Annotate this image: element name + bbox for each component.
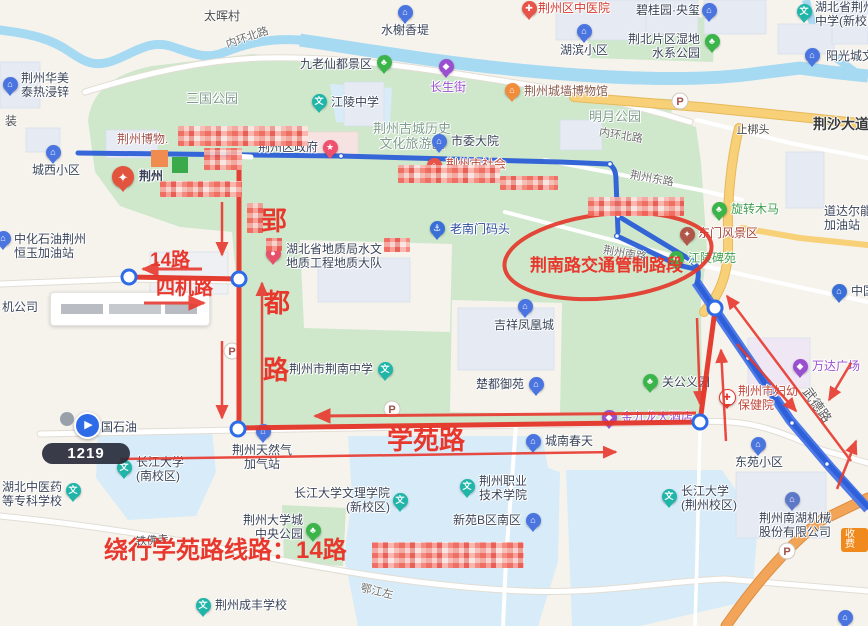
poi-label-laonanmen-matou[interactable]: 老南门码头	[450, 223, 510, 237]
poi-label-ji-gongsi[interactable]: 机公司	[2, 301, 38, 315]
jingnan-zhongxue-pin-icon[interactable]: 文	[378, 362, 393, 377]
wenli-xueyuan-pin-icon[interactable]: 文	[393, 493, 408, 508]
poi-label-chengxi-xiaoqu[interactable]: 城西小区	[32, 164, 80, 178]
dongyuan-xiaoqu-pin-icon[interactable]: ⌂	[751, 437, 766, 452]
poi-label-chudu-yuyuan[interactable]: 楚都御苑	[476, 378, 524, 392]
censored-text	[204, 148, 242, 170]
xuanzhuan-muma-pin-icon[interactable]: ♣	[712, 202, 727, 217]
changshengjie-pin-icon[interactable]: ◆	[439, 59, 454, 74]
jingzhou-badge-pin-icon[interactable]: ✦	[112, 166, 134, 188]
poi-label-jixiang-fenghuangcheng[interactable]: 吉祥凤凰城	[494, 319, 554, 333]
jinjiulong-hotel-pin-icon[interactable]: ◆	[602, 410, 617, 425]
yangguangcheng-pin-icon[interactable]: ⌂	[805, 48, 820, 63]
poi-label-sanguo-park[interactable]: 三国公园	[186, 92, 238, 107]
route-14-annotation: 14路	[150, 251, 190, 270]
yingdu-road-annotation-char: 路	[263, 357, 289, 383]
censored-text	[160, 181, 242, 197]
laonanmen-matou-pin-icon[interactable]: ⚓	[430, 221, 445, 236]
poi-label-jingbei-shidi-park[interactable]: 荆北片区湿地水系公园	[628, 33, 700, 61]
poi-label-changshengjie[interactable]: 长生街	[430, 81, 466, 95]
daxuecheng-park-pin-icon[interactable]: ♣	[306, 523, 321, 538]
zhongguo-shihua-pin-icon[interactable]: ⌂	[832, 284, 847, 299]
poi-label-shuixie-xiangdi[interactable]: 水榭香堤	[381, 24, 429, 38]
chudu-yuyuan-pin-icon[interactable]: ⌂	[529, 377, 544, 392]
biguiyuan-yangxi-pin-icon[interactable]: ⌂	[702, 3, 717, 18]
jiangling-zhongxue-pin-icon[interactable]: 文	[312, 94, 327, 109]
poi-label-zhuang-cut[interactable]: 装	[5, 115, 17, 129]
poi-label-xinyuan-b[interactable]: 新苑B区南区	[453, 514, 521, 528]
poi-label-zhiye-jishu-xueyuan[interactable]: 荆州职业技术学院	[479, 475, 527, 503]
zhongyiyao-zhuanke-pin-icon[interactable]: 文	[66, 483, 81, 498]
wanda-plaza-pin-icon[interactable]: ◆	[793, 359, 808, 374]
poi-label-jingzhou-huamei[interactable]: 荆州华美泰热浸锌	[21, 72, 69, 100]
bus-tooltip: 1219	[42, 443, 130, 464]
poi-label-daodaer-jiayou[interactable]: 道达尔能源加油站	[824, 205, 868, 233]
poi-layer: ⌂水榭香堤✚荆州区中医院⌂碧桂园·央玺文湖北省荆州中学(新校区)⌂湖滨小区♣荆北…	[0, 0, 868, 626]
hubei-jingzhou-zhongxue-pin-icon[interactable]: 文	[797, 4, 812, 19]
poi-label-zhongguo-shihua[interactable]: 中国石化	[851, 285, 868, 299]
guangong-yiyuan-pin-icon[interactable]: ♣	[643, 374, 658, 389]
jixiang-fenghuangcheng-pin-icon[interactable]: ⌂	[518, 299, 533, 314]
chengqiang-bowuguan-pin-icon[interactable]: ⌂	[505, 83, 520, 98]
play-icon: ▶	[84, 420, 92, 431]
dongmen-fengjingqu-pin-icon[interactable]: ✦	[680, 227, 695, 242]
xueyuan-road-annotation: 学苑路	[387, 427, 465, 453]
jingzhouqu-zhengfu-pin-icon[interactable]: ★	[323, 140, 338, 155]
poi-label-jingzhouqu-zhongyiyuan[interactable]: 荆州区中医院	[538, 2, 610, 16]
poi-label-chengqiang-bowuguan[interactable]: 荆州城墙博物馆	[524, 85, 608, 99]
control-zone-annotation: 荆南路交通管制路段	[530, 257, 683, 274]
poi-label-mingyue-park[interactable]: 明月公园	[589, 110, 641, 125]
poi-label-jiulao-xiandu[interactable]: 九老仙都景区	[300, 58, 372, 72]
poi-label-hubin-xiaoqu[interactable]: 湖滨小区	[560, 44, 608, 58]
poi-label-biguiyuan-yangxi[interactable]: 碧桂园·央玺	[636, 4, 700, 18]
poi-label-zhongyiyao-zhuanke[interactable]: 湖北中医药等专科学校	[2, 481, 62, 509]
xinyuan-b-pin-icon[interactable]: ⌂	[526, 513, 541, 528]
zhiye-jishu-xueyuan-pin-icon[interactable]: 文	[460, 479, 475, 494]
location-pin-icon	[60, 412, 74, 426]
nanhu-jixie-pin-icon[interactable]: ⌂	[785, 492, 800, 507]
poi-label-zhonghua-shiyou[interactable]: 中化石油荆州恒玉加油站	[14, 233, 86, 261]
poi-label-dongyuan-xiaoqu[interactable]: 东苑小区	[735, 456, 783, 470]
poi-label-jiangling-zhongxue[interactable]: 江陵中学	[331, 96, 379, 110]
poi-label-yangguangcheng[interactable]: 阳光城文	[826, 50, 868, 64]
jingbei-shidi-park-pin-icon[interactable]: ♣	[705, 34, 720, 49]
censored-text	[178, 126, 308, 146]
poi-label-chengfeng-school[interactable]: 荆州成丰学校	[215, 599, 287, 613]
chengxi-xiaoqu-pin-icon[interactable]: ⌂	[46, 145, 61, 160]
poi-label-changda-jingzhou[interactable]: 长江大学(荆州校区)	[681, 485, 737, 513]
shuixie-xiangdi-pin-icon[interactable]: ⌂	[398, 5, 413, 20]
poi-label-tianranqi-jiaqizhan[interactable]: 荆州天然气加气站	[232, 444, 292, 472]
fuyou-baojianyuan-pin-icon[interactable]: ✚	[719, 389, 736, 406]
toll-badge: 收费	[841, 528, 868, 552]
detour-note-annotation: 绕行学苑路线路：14路	[104, 539, 347, 563]
hubin-xiaoqu-pin-icon[interactable]: ⌂	[577, 24, 592, 39]
poi-label-jingnan-zhongxue[interactable]: 荆州市荆南中学	[289, 363, 373, 377]
tianranqi-jiaqizhan-pin-icon[interactable]: ⌂	[256, 424, 271, 439]
poi-label-xuanzhuan-muma[interactable]: 旋转木马	[731, 203, 779, 217]
shiwei-dayuan-pin-icon[interactable]: ⌂	[432, 134, 447, 149]
censored-text	[384, 238, 410, 252]
poi-label-jiangling-beiyuan[interactable]: 江陵碑苑	[688, 252, 736, 266]
censored-text	[500, 176, 558, 190]
chengfeng-school-pin-icon[interactable]: 文	[196, 598, 211, 613]
map-canvas[interactable]: P P P P 太晖村内环北路内环北路荆州东路荆沙大道止梆头荆州南路武德路鄂江左…	[0, 0, 868, 626]
jingzhou-huamei-pin-icon[interactable]: ⌂	[3, 77, 18, 92]
poi-label-hubei-jingzhou-zhongxue[interactable]: 湖北省荆州中学(新校区)	[815, 1, 868, 29]
changda-jingzhou-pin-icon[interactable]: 文	[662, 489, 677, 504]
poi-label-wanda-plaza[interactable]: 万达广场	[812, 360, 860, 374]
censored-text	[372, 542, 524, 568]
jingzhouqu-zhongyiyuan-pin-icon[interactable]: ✚	[522, 1, 537, 16]
poi-label-guangong-yiyuan[interactable]: 关公义园	[662, 376, 710, 390]
jiulao-xiandu-pin-icon[interactable]: ♣	[377, 55, 392, 70]
censored-text	[398, 165, 500, 183]
poi-label-jinjiulong-hotel[interactable]: 金九龙大酒店	[621, 411, 693, 425]
yingdu-road-annotation-char: 郢	[261, 208, 287, 234]
censored-text	[588, 197, 684, 216]
poi-label-shiwei-dayuan[interactable]: 市委大院	[451, 135, 499, 149]
siji-road-annotation: 四机路	[156, 279, 213, 298]
navigate-button[interactable]: ▶	[74, 412, 101, 439]
poi-label-dizhi-dadui[interactable]: 湖北省地质局水文地质工程地质大队	[286, 243, 382, 271]
poi-label-jingzhou-bowuguan[interactable]: 荆州博物.	[117, 133, 168, 147]
poi-label-chengnan-chuntian[interactable]: 城南春天	[545, 435, 593, 449]
zhonghua-shiyou-pin-icon[interactable]: ⌂	[0, 231, 11, 246]
poi-label-nanhu-jixie[interactable]: 荆州南湖机械股份有限公司	[759, 512, 831, 540]
chengnan-chuntian-pin-icon[interactable]: ⌂	[526, 434, 541, 449]
yingdu-road-annotation-char: 都	[264, 290, 290, 316]
poi-label-dongmen-fengjingqu[interactable]: 东门风景区	[698, 227, 758, 241]
poi-label-fuyou-baojianyuan[interactable]: 荆州市妇幼保健院	[738, 385, 798, 413]
poi-label-wenli-xueyuan[interactable]: 长江大学文理学院(新校区)	[294, 487, 390, 515]
poi-label-guoshiyou[interactable]: 国石油	[101, 421, 137, 435]
censored-text	[266, 238, 282, 251]
poi-label-changda-nan[interactable]: 长江大学(南校区)	[136, 456, 184, 484]
corner-pin-pin-icon[interactable]: ⌂	[838, 610, 853, 625]
